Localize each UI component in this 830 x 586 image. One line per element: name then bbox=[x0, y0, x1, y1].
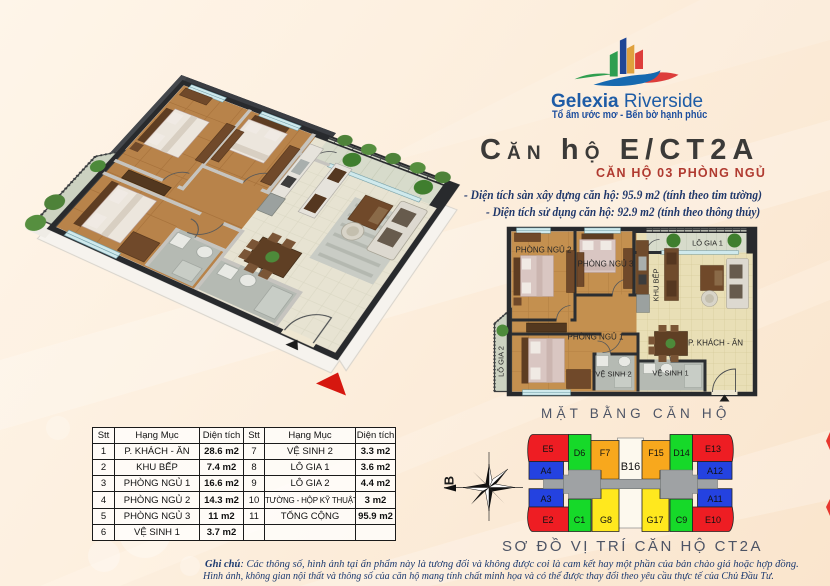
svg-text:E5: E5 bbox=[542, 444, 553, 454]
svg-text:D6: D6 bbox=[574, 448, 586, 458]
svg-text:LÔ GIA 1: LÔ GIA 1 bbox=[692, 239, 723, 248]
svg-text:G8: G8 bbox=[600, 515, 612, 525]
svg-text:A11: A11 bbox=[707, 494, 722, 504]
svg-text:P. KHÁCH - ĂN: P. KHÁCH - ĂN bbox=[688, 339, 743, 348]
svg-text:D14: D14 bbox=[673, 448, 690, 458]
svg-text:B16: B16 bbox=[621, 461, 641, 473]
svg-text:E2: E2 bbox=[542, 515, 553, 525]
svg-text:LÔ GIA 2: LÔ GIA 2 bbox=[497, 346, 506, 377]
svg-text:VỆ SINH 2: VỆ SINH 2 bbox=[595, 370, 631, 379]
svg-text:KHU BẾP: KHU BẾP bbox=[651, 269, 661, 302]
svg-text:PHÒNG NGỦ 3: PHÒNG NGỦ 3 bbox=[577, 260, 634, 269]
svg-text:G17: G17 bbox=[646, 515, 663, 525]
svg-text:PHÒNG NGỦ 2: PHÒNG NGỦ 2 bbox=[515, 246, 572, 255]
svg-text:C9: C9 bbox=[676, 515, 688, 525]
svg-text:E10: E10 bbox=[705, 515, 721, 525]
svg-text:E13: E13 bbox=[705, 444, 721, 454]
svg-text:B: B bbox=[442, 476, 457, 485]
svg-text:F7: F7 bbox=[600, 448, 611, 458]
svg-text:A12: A12 bbox=[707, 466, 723, 476]
svg-text:A4: A4 bbox=[540, 466, 551, 476]
svg-text:PHÒNG NGỦ 1: PHÒNG NGỦ 1 bbox=[567, 333, 624, 342]
svg-text:F15: F15 bbox=[648, 448, 664, 458]
svg-text:VỆ SINH 1: VỆ SINH 1 bbox=[652, 369, 688, 378]
svg-text:C1: C1 bbox=[574, 515, 586, 525]
svg-text:A3: A3 bbox=[540, 494, 551, 504]
